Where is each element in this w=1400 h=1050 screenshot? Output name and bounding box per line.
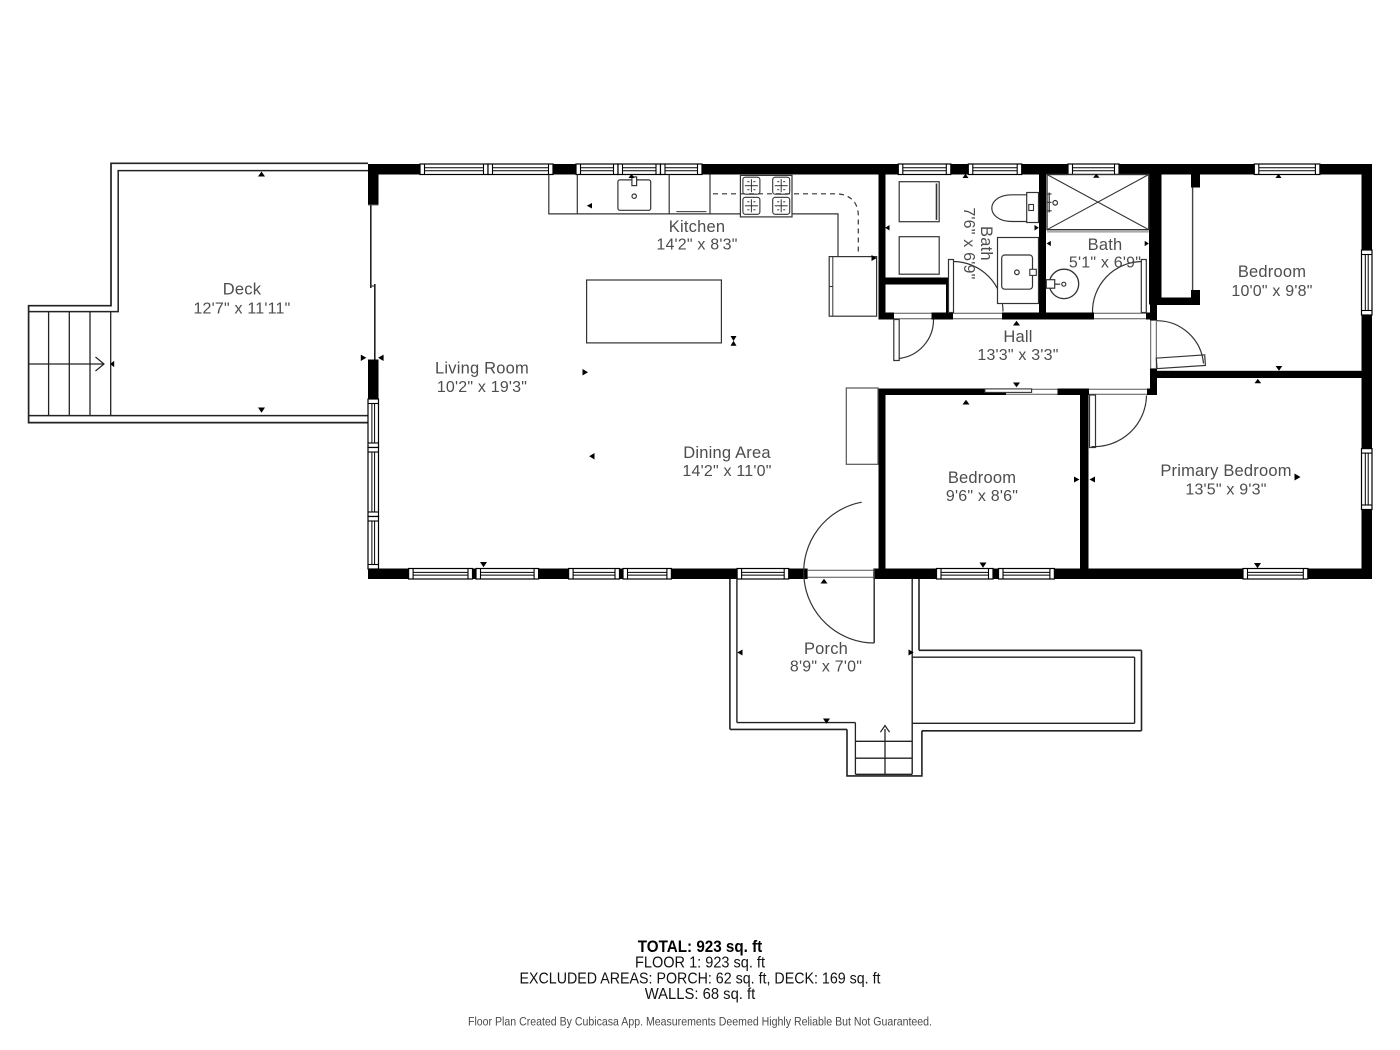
svg-text:10'0" x 9'8": 10'0" x 9'8" [1231,283,1312,300]
svg-text:Porch: Porch [804,640,848,658]
svg-text:Kitchen: Kitchen [669,218,725,236]
svg-text:8'9" x 7'0": 8'9" x 7'0" [790,659,862,676]
svg-text:Deck: Deck [223,281,262,299]
svg-text:TOTAL: 923 sq. ft: TOTAL: 923 sq. ft [638,938,763,956]
svg-text:14'2" x 8'3": 14'2" x 8'3" [656,237,737,254]
svg-text:Dining Area: Dining Area [683,444,771,462]
svg-text:Primary Bedroom: Primary Bedroom [1160,462,1291,480]
svg-text:WALLS: 68 sq. ft: WALLS: 68 sq. ft [645,986,756,1003]
svg-text:Bedroom: Bedroom [1238,263,1306,281]
svg-text:FLOOR 1: 923 sq. ft: FLOOR 1: 923 sq. ft [635,955,766,972]
svg-text:5'1" x 6'9": 5'1" x 6'9" [1069,255,1141,272]
svg-text:13'5" x 9'3": 13'5" x 9'3" [1185,482,1266,499]
svg-text:7'6" x 6'9": 7'6" x 6'9" [960,207,977,279]
svg-text:Living Room: Living Room [435,360,529,378]
svg-text:EXCLUDED AREAS: PORCH: 62 sq.: EXCLUDED AREAS: PORCH: 62 sq. ft, DECK: … [520,971,881,988]
svg-text:Bath: Bath [1088,236,1123,254]
svg-text:12'7" x 11'11": 12'7" x 11'11" [193,301,290,318]
svg-text:Hall: Hall [1003,328,1032,346]
svg-text:Bedroom: Bedroom [948,469,1016,487]
svg-text:Bath: Bath [977,226,995,261]
svg-text:14'2" x 11'0": 14'2" x 11'0" [682,463,771,480]
svg-text:Floor Plan Created By Cubicasa: Floor Plan Created By Cubicasa App. Meas… [468,1015,932,1029]
svg-text:10'2" x 19'3": 10'2" x 19'3" [437,379,527,396]
svg-text:13'3" x 3'3": 13'3" x 3'3" [977,347,1058,364]
svg-text:9'6" x 8'6": 9'6" x 8'6" [946,488,1018,505]
